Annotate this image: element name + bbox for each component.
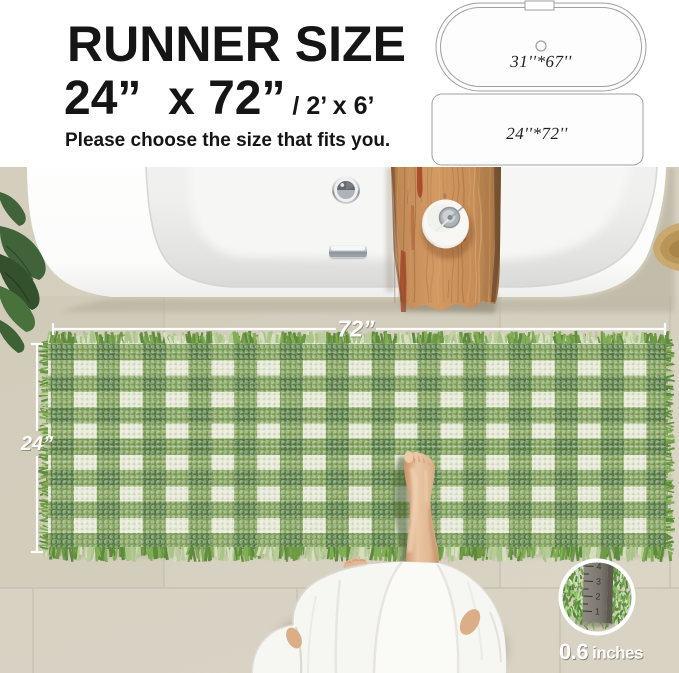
svg-text:24''*72'': 24''*72'' (506, 124, 568, 143)
svg-text:31''*67'': 31''*67'' (509, 52, 572, 71)
